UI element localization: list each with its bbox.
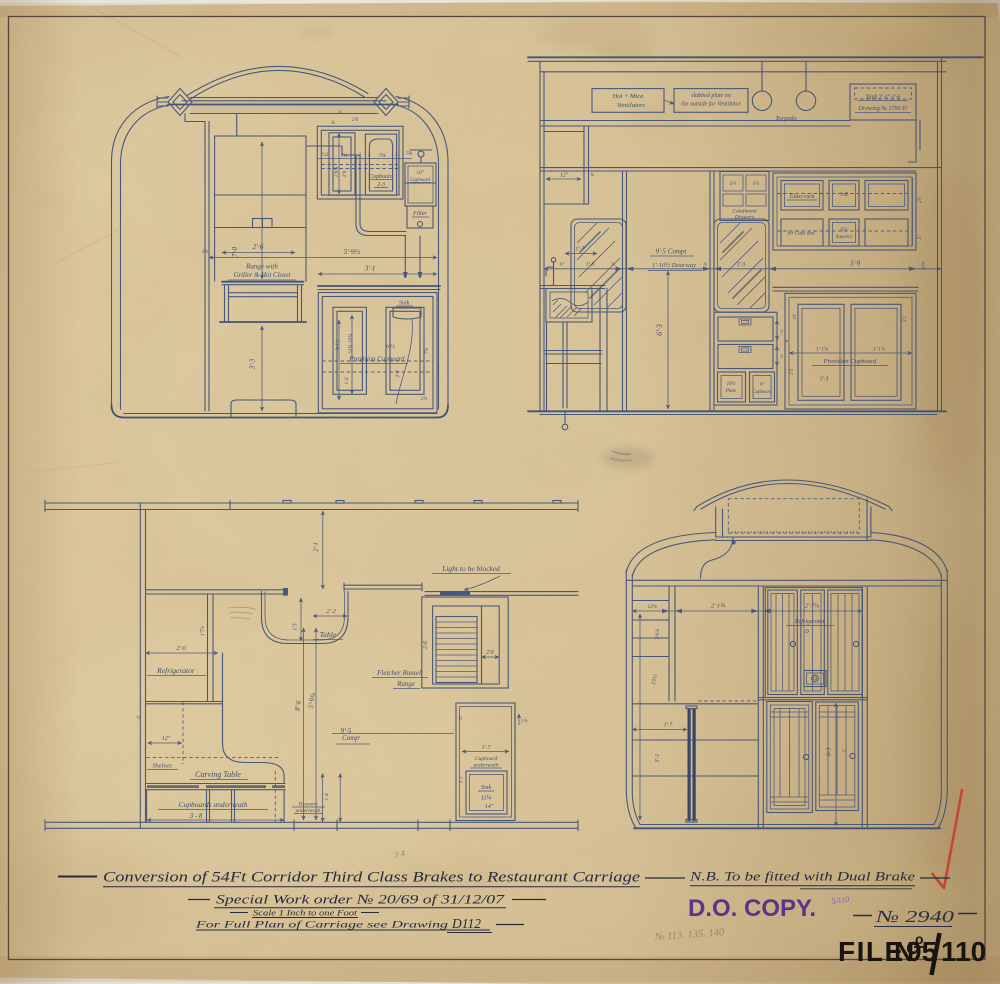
svg-text:6½: 6½	[753, 182, 760, 187]
svg-text:7: 7	[780, 355, 783, 361]
svg-text:3'1: 3'1	[459, 776, 465, 784]
svg-text:1'·7: 1'·7	[575, 246, 585, 253]
svg-text:2'·1¾: 2'·1¾	[711, 603, 726, 610]
svg-text:1'·3: 1'·3	[737, 262, 746, 268]
svg-text:Torpedo: Torpedo	[775, 115, 797, 122]
svg-text:1-2: 1-2	[344, 377, 350, 385]
svg-text:Griller & Hot Closet: Griller & Hot Closet	[234, 272, 292, 279]
svg-text:12": 12"	[560, 173, 569, 179]
svg-text:Compᵗ: Compᵗ	[342, 734, 361, 742]
svg-text:Shelves: Shelves	[152, 763, 172, 770]
svg-text:2'0: 2'0	[486, 650, 493, 656]
svg-text:2'·0: 2'·0	[176, 645, 186, 652]
svg-text:Plate: Plate	[725, 389, 737, 394]
svg-text:8'·6: 8'·6	[293, 700, 302, 712]
svg-text:D.O. COPY.: D.O. COPY.	[688, 895, 816, 922]
svg-text:Range: Range	[396, 680, 415, 688]
svg-text:1'7⅞: 1'7⅞	[201, 626, 206, 636]
svg-text:2'·2: 2'·2	[326, 608, 336, 615]
svg-text:Saucers: Saucers	[836, 234, 852, 240]
svg-text:N.B. To be fitted with Dual: N.B. To be fitted with Dual Brake	[689, 870, 916, 884]
svg-text:Scale 1 Inch to one Foot: Scale 1 Inch to one Foot	[253, 908, 358, 918]
svg-text:1'·7: 1'·7	[664, 723, 674, 729]
svg-text:3'1: 3'1	[903, 316, 908, 322]
svg-text:7¾: 7¾	[425, 348, 430, 355]
svg-text:for Cups and: for Cups and	[787, 230, 815, 237]
svg-text:Cupboard: Cupboard	[475, 756, 497, 762]
svg-text:10": 10"	[416, 171, 424, 176]
svg-text:10¾·10¾: 10¾·10¾	[348, 334, 354, 355]
svg-text:Refrigerator: Refrigerator	[794, 618, 826, 625]
svg-text:7'·0: 7'·0	[231, 246, 239, 257]
svg-text:7: 7	[780, 330, 783, 336]
svg-text:Hot + Mica: Hot + Mica	[612, 93, 644, 100]
svg-text:Conversion of 54Ft Corridor: Conversion of 54Ft Corridor Third Class …	[103, 870, 641, 886]
svg-text:12": 12"	[162, 736, 171, 742]
svg-text:Drawing № 1790 E²: Drawing № 1790 E²	[858, 106, 908, 112]
svg-text:¼: ¼	[136, 716, 140, 721]
svg-text:2'0: 2'0	[342, 170, 348, 177]
svg-text:3-1½: 3-1½	[334, 339, 341, 351]
svg-text:2'0: 2'0	[918, 196, 923, 203]
svg-text:2'·6: 2'·6	[253, 242, 264, 251]
svg-text:Light to be blocked: Light to be blocked	[441, 564, 500, 573]
svg-text:2'0¼: 2'0¼	[655, 629, 661, 640]
svg-text:2'0: 2'0	[352, 118, 359, 123]
svg-text:7⅛: 7⅛	[341, 153, 348, 159]
svg-text:Tank 3'·4"·1'·6: Tank 3'·4"·1'·6	[866, 94, 901, 101]
svg-text:o: o	[915, 931, 924, 947]
svg-text:1'·1⅞: 1'·1⅞	[873, 347, 885, 353]
svg-text:5'·9½: 5'·9½	[344, 247, 361, 256]
svg-text:the outside for Ventilator: the outside for Ventilator	[681, 101, 741, 108]
svg-text:6½: 6½	[730, 182, 737, 187]
svg-text:1'·7: 1'·7	[482, 745, 492, 751]
svg-text:Carving Table: Carving Table	[195, 770, 241, 779]
svg-text:3 - 8: 3 - 8	[189, 812, 203, 820]
svg-text:7⅜: 7⅜	[406, 152, 413, 157]
svg-text:D112: D112	[451, 916, 481, 931]
svg-text:3'·3: 3'·3	[249, 358, 257, 370]
svg-text:1'3: 1'3	[790, 368, 795, 375]
svg-text:Special Work order № 20/69 of: Special Work order № 20/69 of 31/12/07	[216, 892, 505, 907]
svg-text:10½: 10½	[727, 382, 736, 387]
svg-text:6'·3: 6'·3	[655, 324, 664, 336]
svg-text:Provision Cupboard: Provision Cupboard	[823, 358, 878, 365]
svg-text:D: D	[804, 630, 809, 635]
svg-text:¾: ¾	[703, 263, 707, 268]
svg-text:2'·7⅞: 2'·7⅞	[805, 603, 820, 610]
svg-text:1'3: 1'3	[293, 623, 299, 630]
svg-text:½2: ½2	[322, 153, 329, 158]
svg-text:⅝: ⅝	[331, 121, 335, 126]
svg-text:1'·: 1'·	[843, 748, 848, 753]
svg-text:6-3: 6-3	[826, 747, 833, 756]
svg-text:9'·5 Compt: 9'·5 Compt	[656, 248, 688, 256]
svg-text:3'·3: 3'·3	[819, 377, 829, 383]
svg-text:Drawers: Drawers	[734, 215, 754, 221]
svg-text:Glass rack: Glass rack	[790, 194, 815, 200]
svg-text:¾: ¾	[611, 263, 615, 268]
svg-text:1'·1⅞: 1'·1⅞	[816, 347, 828, 353]
svg-text:2'·1: 2'·1	[313, 542, 320, 552]
svg-text:10: 10	[793, 314, 798, 320]
svg-text:9": 9"	[559, 262, 565, 268]
svg-text:Cupboards underneath: Cupboards underneath	[178, 800, 247, 809]
svg-text:Refrigerator: Refrigerator	[156, 666, 195, 675]
svg-text:2¼: 2¼	[421, 397, 428, 402]
svg-text:1-4: 1-4	[323, 793, 330, 801]
svg-text:10½: 10½	[385, 343, 395, 350]
svg-text:1'-10½ Doorway: 1'-10½ Doorway	[652, 262, 696, 269]
svg-text:Filter: Filter	[412, 211, 427, 217]
svg-text:¾: ¾	[458, 717, 462, 722]
svg-text:11¼: 11¼	[481, 796, 492, 802]
svg-text:№ 2940: № 2940	[875, 907, 955, 926]
svg-text:slabbed plate on: slabbed plate on	[691, 93, 731, 99]
svg-text:¾: ¾	[590, 174, 594, 179]
svg-text:Cupboard: Cupboard	[752, 390, 772, 395]
svg-text:110: 110	[941, 936, 986, 967]
svg-text:Range with: Range with	[245, 263, 278, 271]
svg-text:2-6: 2-6	[423, 641, 429, 649]
svg-text:2-3: 2-3	[395, 370, 401, 378]
svg-text:Provision Cupboard: Provision Cupboard	[348, 356, 405, 363]
svg-text:Table: Table	[320, 630, 337, 639]
svg-text:Fletcher Russell: Fletcher Russell	[376, 669, 423, 677]
svg-text:For Full Plan of Carriage: For Full Plan of Carriage see Drawing	[194, 920, 448, 931]
svg-text:10¾: 10¾	[922, 261, 927, 270]
svg-text:Ventilators: Ventilators	[617, 102, 646, 109]
svg-text:7⅜: 7⅜	[379, 153, 386, 159]
svg-text:12⅞: 12⅞	[647, 604, 657, 610]
svg-text:¾: ¾	[338, 111, 342, 116]
svg-text:6½: 6½	[841, 226, 848, 233]
svg-text:3⅞: 3⅞	[202, 250, 209, 255]
svg-text:1¾: 1¾	[521, 719, 528, 725]
svg-text:14": 14"	[485, 803, 494, 810]
svg-text:Sink: Sink	[481, 785, 492, 791]
svg-text:3-8: 3-8	[839, 192, 848, 198]
svg-text:3'·9: 3'·9	[849, 260, 861, 268]
svg-text:3'·1: 3'·1	[655, 754, 661, 764]
svg-text:1'·3: 1'·3	[586, 262, 595, 268]
svg-text:3'·1: 3'·1	[364, 264, 376, 273]
